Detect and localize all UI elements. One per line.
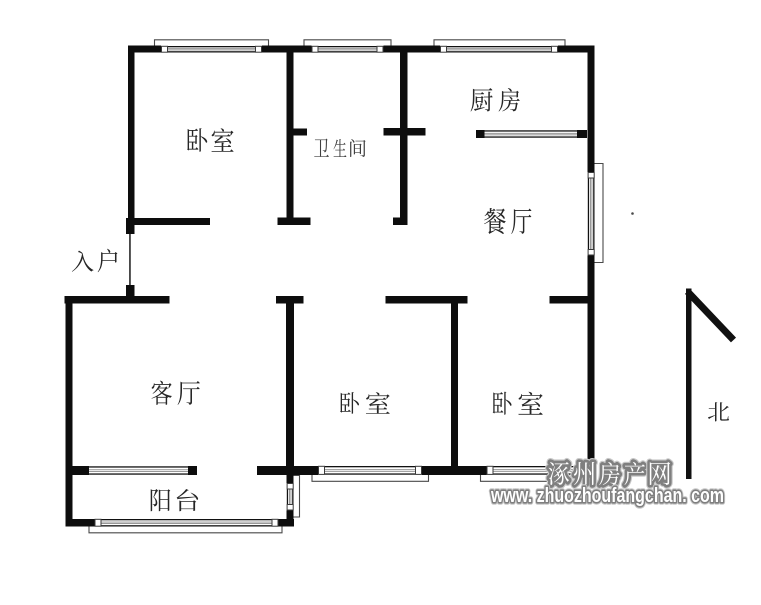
svg-text:www. zhuozhoufangchan. com: www. zhuozhoufangchan. com [490, 485, 724, 507]
